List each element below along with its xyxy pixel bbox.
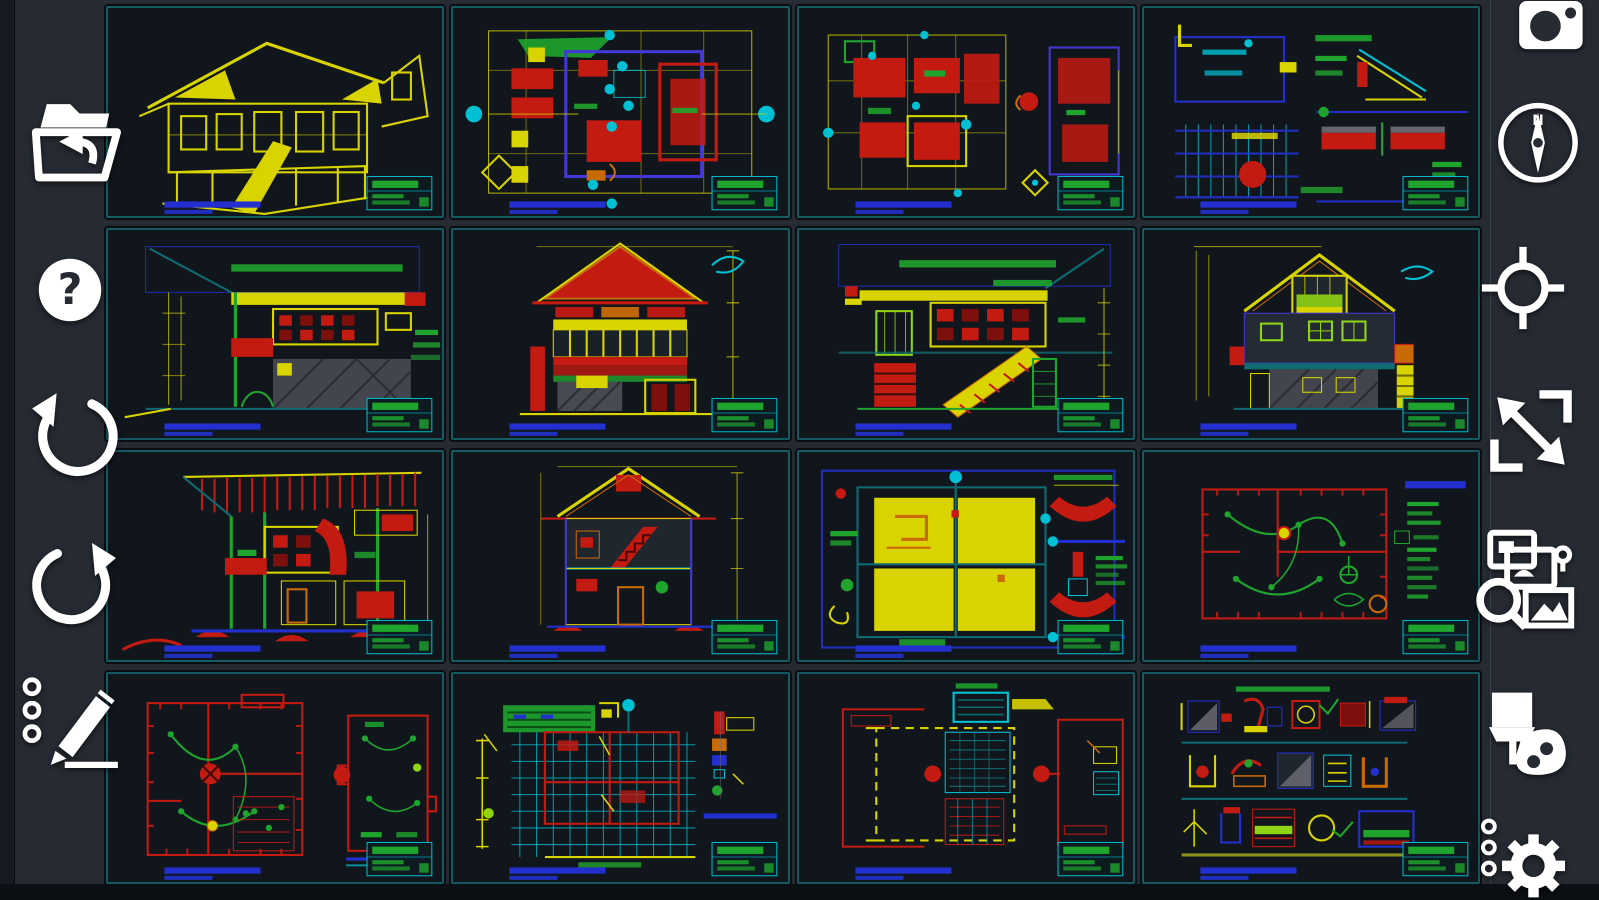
drawing-shape <box>1382 703 1413 728</box>
left-edge-strip <box>0 0 15 886</box>
drawing-shape <box>1093 772 1118 795</box>
drawing-shape <box>884 311 905 355</box>
drawing-shape <box>1408 644 1446 648</box>
cad-viewer-stage: ? N <box>0 0 1599 900</box>
drawing-shape <box>599 736 614 811</box>
drawing-shape <box>1066 110 1085 115</box>
drawing-shape <box>1231 133 1277 139</box>
drawing-shape <box>275 635 308 641</box>
drawing-shape <box>372 194 403 198</box>
sheet-thumbnail-framing-plan[interactable] <box>451 672 789 884</box>
drawing-shape <box>874 498 953 565</box>
drawing-shape <box>1200 210 1248 214</box>
drawing-shape <box>405 292 426 306</box>
sheet-drawing-cross-section <box>453 452 787 660</box>
drawing-shape <box>1223 807 1240 813</box>
drawing-shape <box>510 645 606 651</box>
drawing-shape <box>587 170 606 180</box>
drawing-shape <box>1064 826 1106 834</box>
drawing-shape <box>1196 251 1209 401</box>
drawing-shape <box>924 766 941 783</box>
drawing-shape <box>765 197 774 206</box>
drawing-shape <box>366 796 372 802</box>
sheet-thumbnail-upper-floor-plan[interactable] <box>797 6 1135 218</box>
drawing-shape <box>386 313 411 330</box>
drawing-shape <box>865 728 875 840</box>
drawing-shape <box>1407 521 1440 525</box>
drawing-shape <box>949 741 1005 787</box>
drawing-shape <box>1244 759 1252 767</box>
bottom-edge-strip <box>0 884 1599 900</box>
drawing-shape <box>372 866 410 870</box>
drawing-shape <box>607 121 617 131</box>
drawing-shape <box>936 328 953 340</box>
sheet-thumbnail-roof-plan[interactable] <box>797 450 1135 662</box>
drawing-shape <box>1268 584 1274 590</box>
sheet-thumbnail-perspective-view[interactable] <box>106 6 444 218</box>
drawing-shape <box>859 290 1047 300</box>
drawing-shape <box>1062 124 1108 161</box>
drawing-shape <box>1095 556 1122 560</box>
drawing-shape <box>577 579 598 591</box>
drawing-shape <box>867 108 890 114</box>
sheet-drawing-sanitary-plan <box>799 674 1133 882</box>
drawing-shape <box>164 201 260 207</box>
drawing-shape <box>372 422 410 426</box>
drawing-shape <box>602 709 612 717</box>
drawing-shape <box>1110 641 1119 650</box>
sheet-thumbnail-right-elevation[interactable] <box>797 228 1135 440</box>
sheet-drawing-electrical-plan <box>108 674 442 882</box>
drawing-shape <box>1072 552 1082 577</box>
drawing-shape <box>1315 56 1346 61</box>
drawing-shape <box>466 106 483 123</box>
drawing-shape <box>960 119 970 129</box>
drawing-shape <box>961 309 978 321</box>
redo-button[interactable] <box>26 528 122 636</box>
drawing-shape <box>1236 686 1330 691</box>
drawing-shape <box>957 799 986 845</box>
drawing-shape <box>867 52 875 60</box>
drawing-shape <box>579 862 642 867</box>
drawing-shape <box>1328 763 1347 781</box>
drawing-shape <box>372 416 403 420</box>
drawing-shape <box>545 247 695 299</box>
sheet-thumbnail-longitudinal-section[interactable] <box>106 450 444 662</box>
drawing-shape <box>1063 181 1109 188</box>
drawing-shape <box>183 477 231 517</box>
drawing-shape <box>1340 703 1365 726</box>
sheet-thumbnail-lighting-plan[interactable] <box>1142 450 1480 662</box>
drawing-shape <box>125 409 171 417</box>
drawing-shape <box>1049 592 1116 617</box>
drawing-shape <box>482 156 515 189</box>
drawing-shape <box>718 181 764 188</box>
drawing-shape <box>1316 576 1322 582</box>
drawing-shape <box>342 79 382 104</box>
drawing-shape <box>855 210 903 214</box>
open-folder-icon <box>26 90 130 190</box>
drawing-shape <box>1110 197 1119 206</box>
drawing-shape <box>1413 535 1438 539</box>
drawing-shape <box>1408 416 1439 420</box>
drawing-shape <box>1031 180 1037 186</box>
drawing-shape <box>1058 317 1085 322</box>
drawing-shape <box>1269 369 1378 409</box>
drawing-shape <box>1196 766 1209 778</box>
drawing-shape <box>164 423 260 429</box>
drawing-shape <box>164 645 260 651</box>
style-button[interactable] <box>1475 684 1575 776</box>
drawing-shape <box>718 403 764 410</box>
drawing-shape <box>1053 475 1111 480</box>
drawing-shape <box>382 56 428 127</box>
drawing-shape <box>369 799 417 812</box>
fit-view-button[interactable] <box>1486 384 1576 478</box>
sheet-thumbnail-rear-elevation[interactable] <box>1142 228 1480 440</box>
drawing-shape <box>281 581 335 625</box>
drawing-shape <box>1200 423 1296 429</box>
drawing-shape <box>1267 707 1282 726</box>
sheet-thumbnail-cross-section[interactable] <box>451 450 789 662</box>
drawing-shape <box>372 860 403 864</box>
drawing-shape <box>1295 522 1301 528</box>
drawing-shape <box>840 579 853 591</box>
drawing-shape <box>372 181 418 188</box>
drawing-shape <box>1292 701 1319 728</box>
drawing-shape <box>278 804 284 810</box>
drawing-shape <box>531 346 546 410</box>
sheet-thumbnail-sanitary-plan[interactable] <box>797 672 1135 884</box>
drawing-shape <box>362 735 368 741</box>
drawing-shape <box>164 876 212 880</box>
drawing-shape <box>414 800 420 806</box>
drawing-shape <box>1363 830 1409 837</box>
drawing-shape <box>1408 638 1439 642</box>
drawing-shape <box>1032 766 1049 783</box>
drawing-shape <box>859 122 905 157</box>
gallery-search-icon <box>1470 526 1578 634</box>
drawing-shape <box>605 30 615 40</box>
drawing-shape <box>993 280 1051 286</box>
drawing-shape <box>1045 249 1103 289</box>
sheet-drawing-ground-floor-plan <box>453 8 787 216</box>
drawing-shape <box>296 554 311 566</box>
fullscreen-arrows-icon <box>1486 384 1576 478</box>
drawing-shape <box>1032 371 1055 396</box>
sheet-thumbnail-left-elevation[interactable] <box>106 228 444 440</box>
sheet-drawing-roof-plan <box>799 452 1133 660</box>
drawing-shape <box>1370 768 1378 776</box>
drawing-shape <box>512 131 529 148</box>
drawing-shape <box>231 292 411 304</box>
drawing-shape <box>1047 632 1057 642</box>
drawing-shape <box>945 799 1003 845</box>
drawing-shape <box>1455 419 1464 428</box>
drawing-shape <box>178 808 184 814</box>
drawing-shape <box>554 365 688 375</box>
drawing-shape <box>1058 58 1110 104</box>
undo-icon <box>26 380 124 486</box>
drawing-shape <box>288 589 307 622</box>
drawing-shape <box>1040 513 1050 523</box>
open-file-button[interactable] <box>26 90 130 190</box>
drawing-shape <box>1202 489 1386 576</box>
drawing-shape <box>277 363 292 375</box>
drawing-shape <box>1321 133 1375 150</box>
drawing-shape <box>1063 847 1109 854</box>
drawing-shape <box>1369 596 1386 613</box>
drawing-shape <box>514 715 527 719</box>
drawing-shape <box>382 514 413 531</box>
sheet-thumbnail-stair-roof-details[interactable] <box>1142 6 1480 218</box>
drawing-shape <box>321 330 334 340</box>
capture-button[interactable] <box>1506 0 1598 60</box>
drawing-shape <box>1407 502 1438 506</box>
locate-button[interactable] <box>1476 238 1570 338</box>
drawing-shape <box>1407 511 1432 515</box>
drawing-shape <box>1179 25 1192 46</box>
drawing-shape <box>566 568 691 624</box>
drawing-shape <box>243 810 249 816</box>
drawing-shape <box>1357 62 1367 87</box>
drawing-shape <box>574 104 597 109</box>
drawing-shape <box>357 591 395 618</box>
drawing-shape <box>1254 826 1292 834</box>
drawing-shape <box>704 813 777 818</box>
drawing-shape <box>853 58 905 98</box>
drawing-shape <box>955 683 997 688</box>
sheet-drawing-right-elevation <box>799 230 1133 438</box>
drawing-shape <box>528 48 545 63</box>
drawing-shape <box>1407 566 1438 570</box>
drawing-shape <box>279 330 292 340</box>
drawing-shape <box>714 711 724 734</box>
drawing-shape <box>733 774 743 784</box>
drawing-shape <box>300 330 313 340</box>
drawing-shape <box>372 625 418 632</box>
drawing-shape <box>1095 564 1126 568</box>
drawing-shape <box>844 286 857 296</box>
drawing-shape <box>558 741 579 751</box>
drawing-shape <box>419 641 428 650</box>
drawing-shape <box>577 376 608 388</box>
drawing-shape <box>949 807 999 835</box>
edit-pencil-icon <box>20 668 122 768</box>
drawing-shape <box>1296 294 1342 309</box>
sheet-thumbnail-ground-floor-plan[interactable] <box>451 6 789 218</box>
drawing-shape <box>610 164 615 181</box>
drawing-shape <box>959 732 988 792</box>
drawing-shape <box>342 330 355 340</box>
drawing-shape <box>300 315 313 325</box>
settings-button[interactable] <box>1470 816 1576 900</box>
drawing-shape <box>1339 540 1345 546</box>
drawing-shape <box>231 338 273 357</box>
drawing-shape <box>334 767 351 784</box>
drawing-shape <box>1407 548 1436 552</box>
drawing-shape <box>1250 374 1269 409</box>
drawing-shape <box>266 825 272 831</box>
browse-images-button[interactable] <box>1470 526 1578 634</box>
drawing-shape <box>712 257 743 273</box>
drawing-shape <box>365 738 413 749</box>
sheet-drawing-construction-details <box>1144 674 1478 882</box>
drawing-shape <box>242 392 273 407</box>
drawing-shape <box>1200 654 1248 658</box>
drawing-shape <box>648 307 686 317</box>
drawing-shape <box>372 847 418 854</box>
sheet-drawing-perspective-view <box>108 8 442 216</box>
drawing-shape <box>1394 531 1409 543</box>
drawing-shape <box>1408 403 1454 410</box>
drawing-shape <box>855 423 951 429</box>
compass-button[interactable]: N <box>1494 88 1582 192</box>
drawing-shape <box>1408 200 1446 204</box>
drawing-shape <box>964 54 1000 104</box>
drawing-shape <box>718 866 756 870</box>
drawing-shape <box>510 210 558 214</box>
drawing-shape <box>1200 876 1248 880</box>
edit-button[interactable] <box>20 668 122 768</box>
drawing-shape <box>510 654 558 658</box>
drawing-shape <box>334 112 359 149</box>
drawing-shape <box>1063 194 1094 198</box>
sheet-thumbnail-electrical-plan[interactable] <box>106 672 444 884</box>
drawing-shape <box>718 416 749 420</box>
drawing-shape <box>510 423 606 429</box>
drawing-shape <box>957 568 1034 630</box>
drawing-shape <box>1277 527 1290 539</box>
undo-button[interactable] <box>26 380 124 486</box>
drawing-shape <box>1359 50 1426 92</box>
drawing-shape <box>936 309 953 321</box>
paint-style-icon <box>1475 684 1575 776</box>
drawing-shape <box>1032 359 1055 407</box>
drawing-shape <box>842 709 923 846</box>
drawing-shape <box>1202 50 1246 55</box>
drawing-shape <box>765 863 774 872</box>
settings-gear-icon <box>1470 816 1576 900</box>
drawing-shape <box>1063 403 1109 410</box>
sheet-drawing-left-elevation <box>108 230 442 438</box>
drawing-shape <box>1012 699 1054 709</box>
drawing-shape <box>232 744 238 750</box>
drawing-shape <box>913 122 959 159</box>
drawing-shape <box>415 330 438 335</box>
drawing-shape <box>899 639 945 645</box>
drawing-shape <box>1319 699 1338 714</box>
drawing-shape <box>541 715 554 719</box>
drawing-shape <box>1204 70 1242 75</box>
drawing-shape <box>620 790 645 802</box>
drawing-shape <box>296 535 311 547</box>
drawing-shape <box>1321 127 1375 133</box>
sheet-thumbnail-front-elevation[interactable] <box>451 228 789 440</box>
drawing-shape <box>855 432 903 436</box>
drawing-shape <box>949 471 962 483</box>
drawing-shape <box>554 319 688 329</box>
drawing-shape <box>1408 625 1454 632</box>
drawing-shape <box>624 101 634 111</box>
drawing-shape <box>1315 35 1371 41</box>
drawing-shape <box>1095 778 1116 790</box>
drawing-shape <box>718 194 749 198</box>
drawing-shape <box>235 747 245 820</box>
drawing-shape <box>714 770 724 778</box>
drawing-shape <box>554 357 688 365</box>
sheet-thumbnail-construction-details[interactable] <box>1142 672 1480 884</box>
help-button[interactable]: ? <box>33 248 107 332</box>
drawing-shape <box>484 808 494 818</box>
drawing-shape <box>855 645 951 651</box>
drawing-shape <box>718 638 749 642</box>
crosshair-icon <box>1476 238 1570 338</box>
drawing-shape <box>1095 581 1124 585</box>
drawing-shape <box>829 606 847 624</box>
drawing-shape <box>1068 579 1087 596</box>
drawing-shape <box>169 292 182 404</box>
drawing-shape <box>556 307 594 317</box>
drawing-shape <box>1234 776 1265 786</box>
drawing-shape <box>242 695 284 707</box>
drawing-shape <box>1221 714 1231 722</box>
drawing-shape <box>175 70 236 99</box>
drawing-shape <box>876 311 912 355</box>
drawing-shape <box>428 797 436 812</box>
drawing-shape <box>622 699 635 711</box>
drawing-shape <box>1200 867 1296 873</box>
drawing-shape <box>510 432 558 436</box>
drawing-shape <box>419 863 428 872</box>
drawing-shape <box>579 60 608 77</box>
drawing-shape <box>727 718 754 730</box>
drawing-shape <box>1300 187 1342 193</box>
drawing-shape <box>355 552 376 558</box>
drawing-shape <box>1408 847 1454 854</box>
drawing-shape <box>911 102 919 110</box>
drawing-shape <box>602 307 640 317</box>
drawing-shape <box>1183 809 1206 846</box>
drawing-shape <box>1455 197 1464 206</box>
drawing-shape <box>361 832 382 837</box>
drawing-shape <box>1110 863 1119 872</box>
camera-icon <box>1506 0 1598 60</box>
drawing-shape <box>164 432 212 436</box>
drawing-shape <box>1229 346 1244 365</box>
drawing-shape <box>512 97 554 118</box>
drawing-shape <box>830 531 857 536</box>
drawing-shape <box>920 31 928 39</box>
drawing-shape <box>510 201 606 207</box>
drawing-shape <box>855 876 903 880</box>
drawing-shape <box>844 299 861 305</box>
drawing-shape <box>171 734 236 759</box>
drawing-shape <box>1221 813 1240 842</box>
drawing-shape <box>581 537 594 547</box>
drawing-shape <box>1280 62 1297 72</box>
drawing-shape <box>1063 422 1101 426</box>
drawing-shape <box>1200 201 1296 207</box>
drawing-shape <box>273 535 288 547</box>
drawing-shape <box>162 313 185 375</box>
drawing-shape <box>830 540 851 545</box>
drawing-shape <box>1408 194 1439 198</box>
drawing-shape <box>616 475 641 492</box>
svg-text:?: ? <box>58 265 83 315</box>
drawing-shape <box>1110 419 1119 428</box>
drawing-shape <box>1095 573 1118 577</box>
